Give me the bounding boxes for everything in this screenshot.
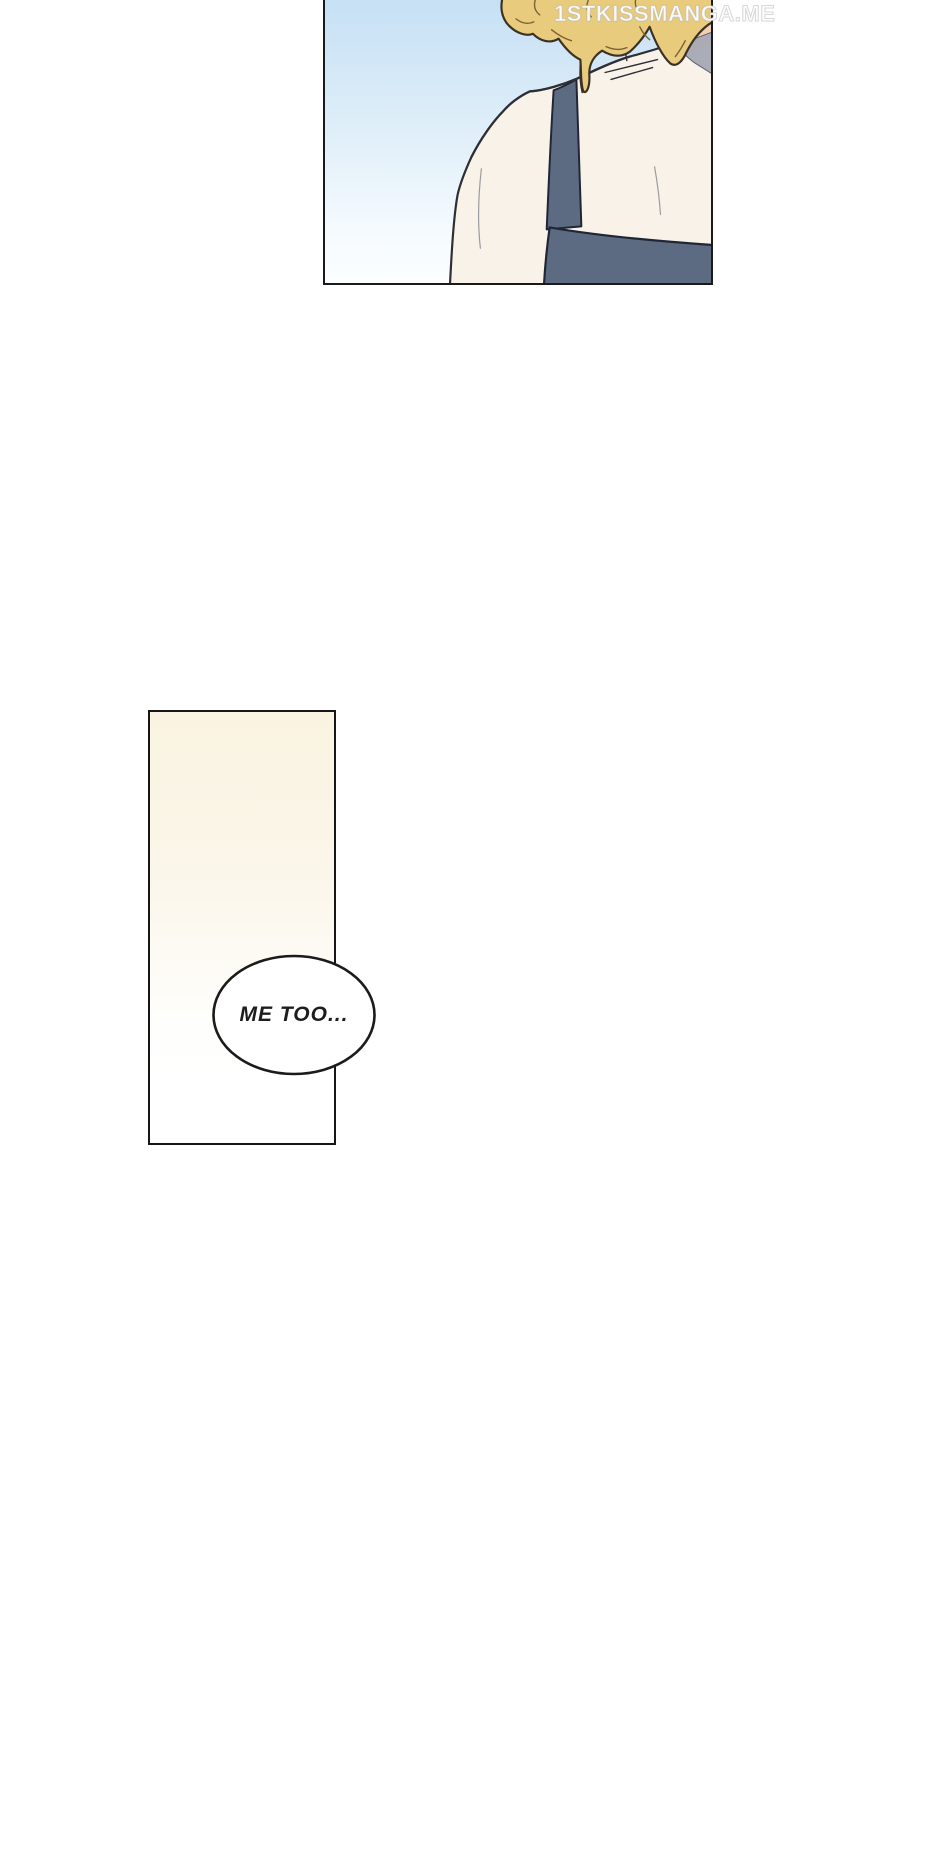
panel-sky-shoulder-art (325, 0, 711, 283)
site-watermark: 1STKISSMANGA.ME (554, 1, 775, 27)
comic-page: 1STKISSMANGA.ME ME TOO... (0, 0, 940, 1862)
panel-sky-shoulder (323, 0, 713, 285)
speech-bubble-text: ME TOO... (209, 952, 379, 1078)
panel-cream (148, 710, 336, 1145)
speech-bubble: ME TOO... (209, 952, 379, 1078)
